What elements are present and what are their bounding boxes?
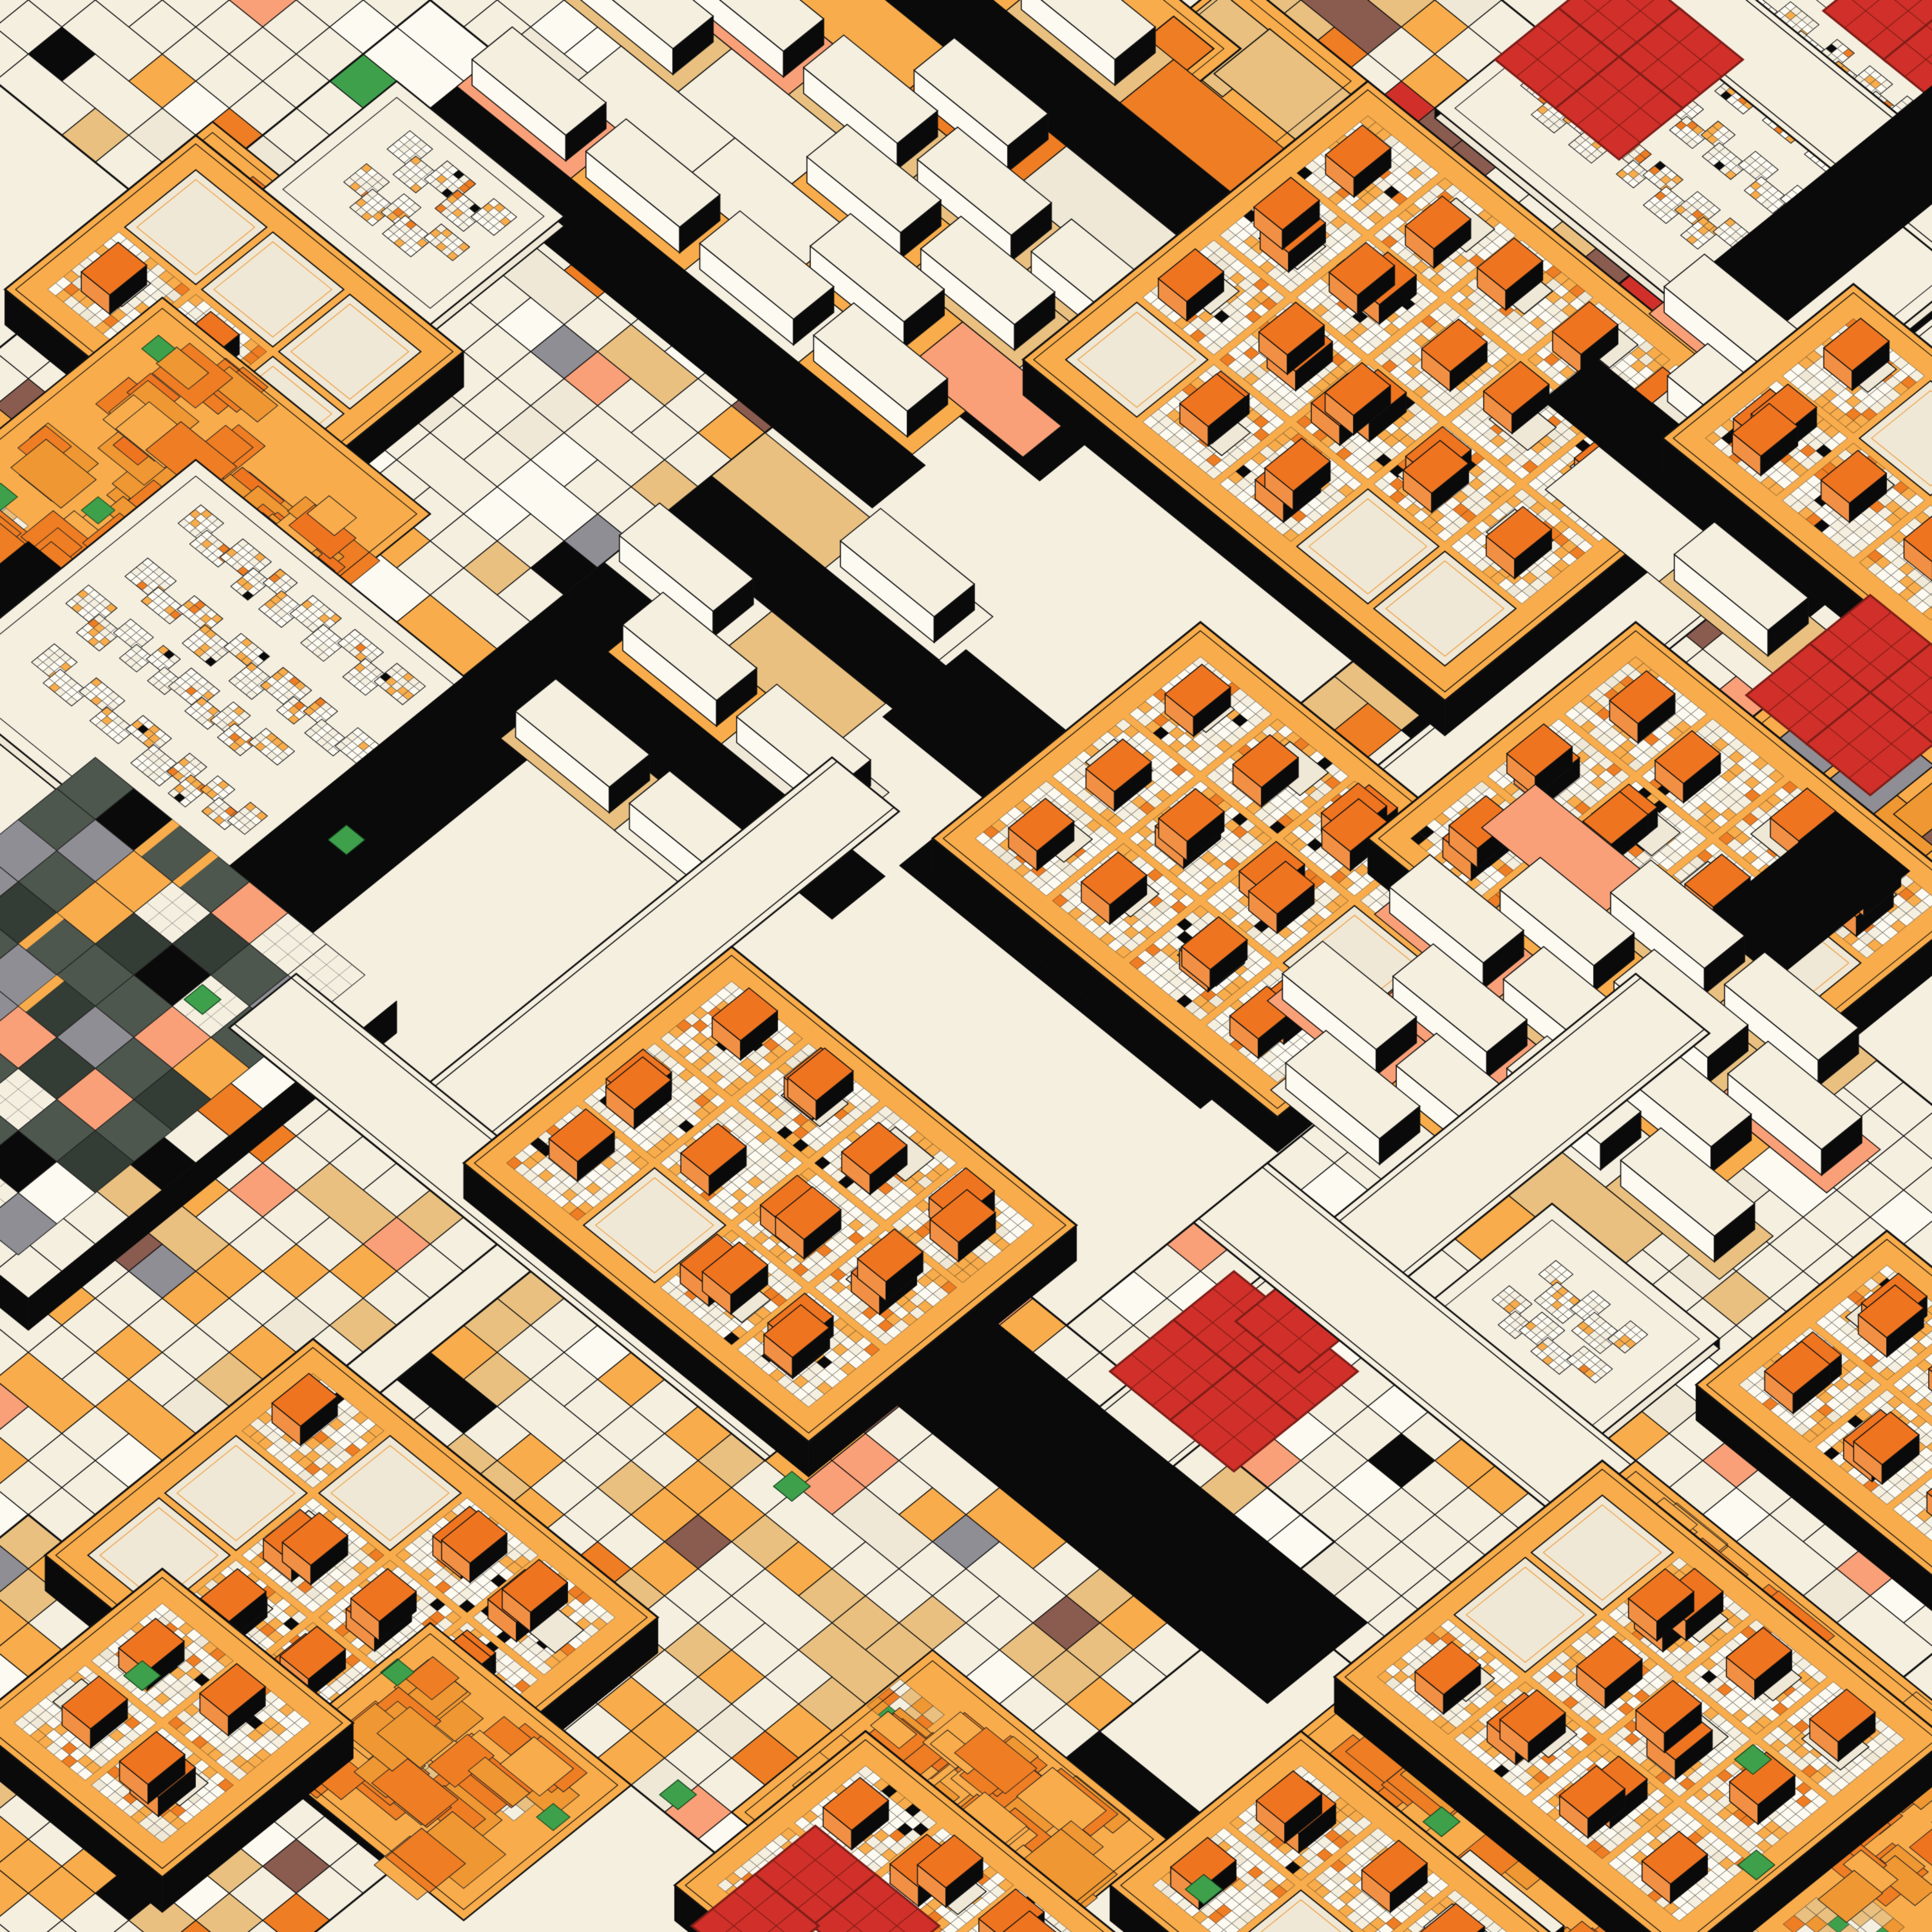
isometric-artwork-canvas [0, 0, 1932, 1932]
generative-artwork [0, 0, 1932, 1932]
